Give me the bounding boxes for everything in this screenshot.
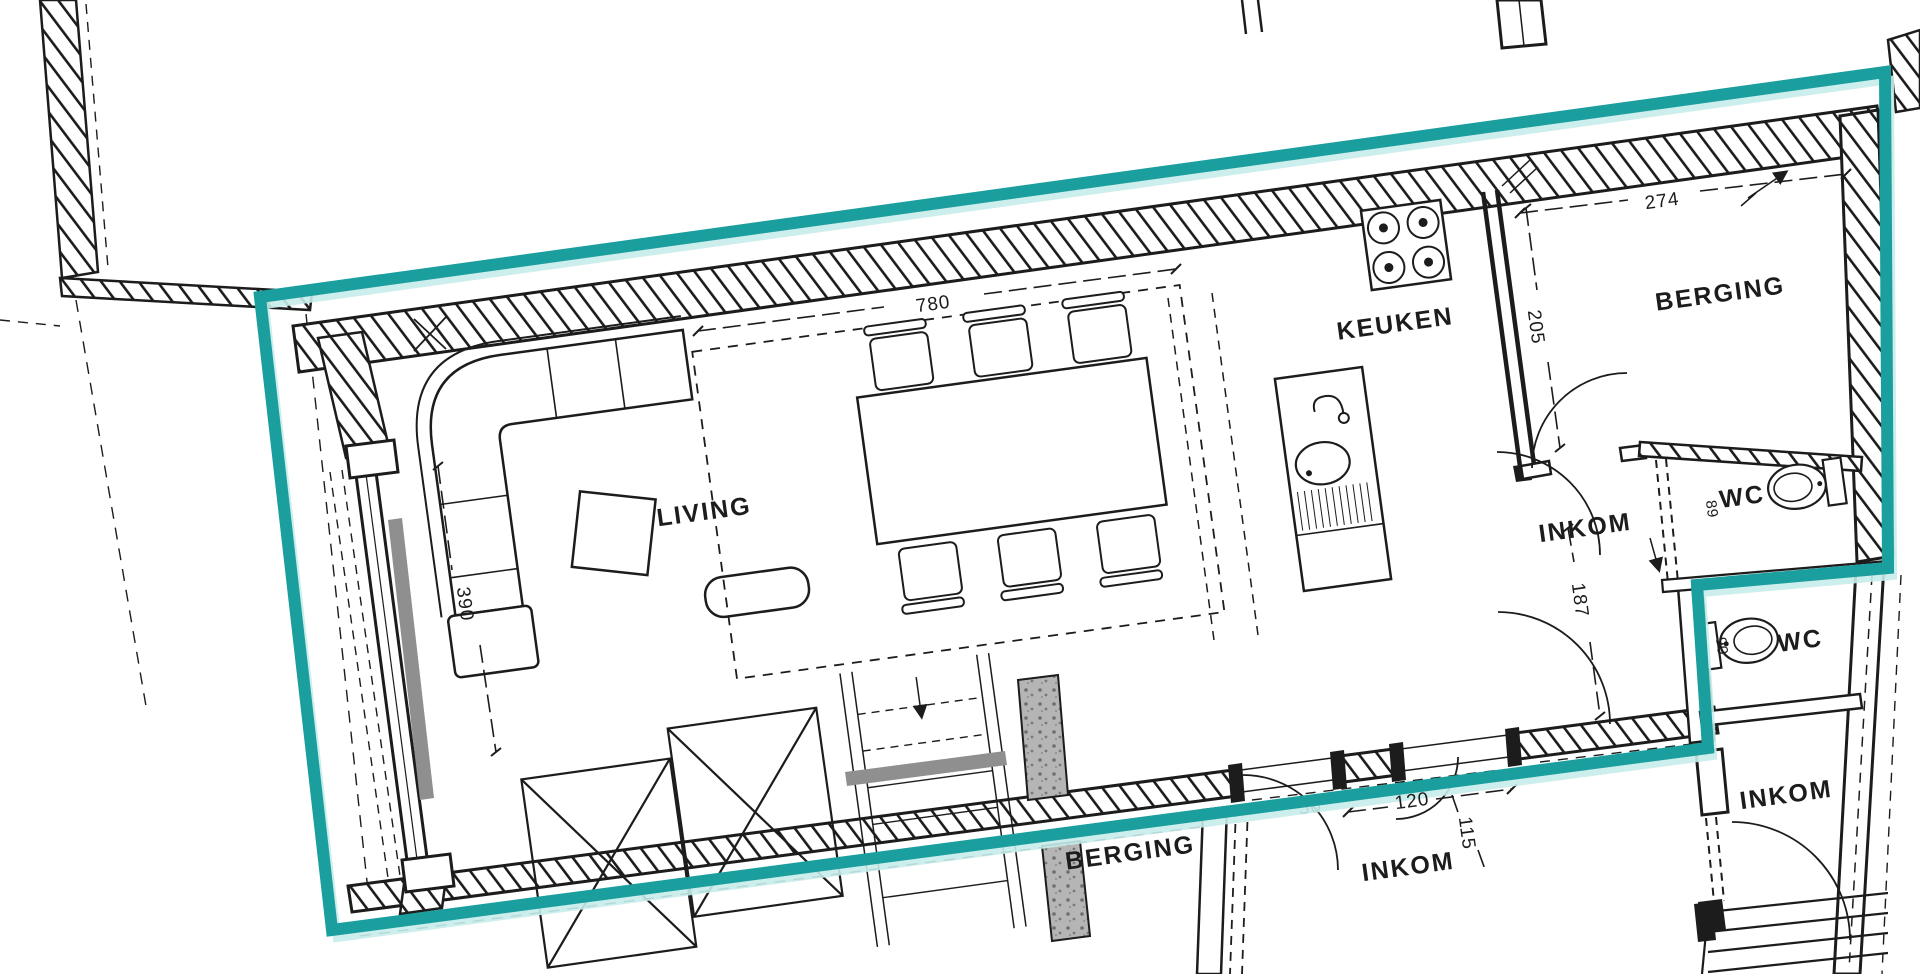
label-inkom-right: INKOM [1738, 775, 1834, 815]
sliding-door-panel-bottom [845, 751, 1007, 786]
floor-plan-page: 50 LIVING KEUKEN BERGING INKOM WC WC BER… [0, 0, 1920, 974]
kitchen-sink-counter [1275, 367, 1391, 591]
dim-wc-top-depth: 89 [1702, 499, 1721, 519]
stove [1361, 200, 1451, 290]
label-keuken: KEUKEN [1335, 302, 1455, 346]
neighbour-walls-top-right [1242, 0, 1920, 112]
coffee-bench [703, 565, 811, 619]
dim-living-width: 780 [915, 292, 952, 318]
label-inkom-mid: INKOM [1537, 508, 1633, 548]
sofa [405, 304, 814, 679]
ottoman [572, 491, 656, 575]
door-arc-berging [1532, 373, 1627, 468]
label-wc-mid: WC [1776, 624, 1825, 658]
label-wc-top: WC [1718, 480, 1767, 514]
dining-set [848, 290, 1177, 617]
dim-hall-depth: 187 [1567, 582, 1593, 619]
dim-wc-mid-depth: 90 [1712, 636, 1731, 656]
label-inkom-bottom: INKOM [1360, 847, 1456, 887]
dim-door-width: 120 [1394, 789, 1431, 815]
dim-entry-width: 115 [1454, 815, 1479, 851]
living-window [330, 440, 454, 892]
label-living: LIVING [655, 492, 753, 533]
dim-kitchen-depth: 205 [1523, 309, 1549, 346]
label-berging-top: BERGING [1653, 271, 1786, 316]
floor-plan-drawing: 50 LIVING KEUKEN BERGING INKOM WC WC BER… [0, 0, 1920, 974]
dim-storage-width: 274 [1644, 189, 1681, 215]
